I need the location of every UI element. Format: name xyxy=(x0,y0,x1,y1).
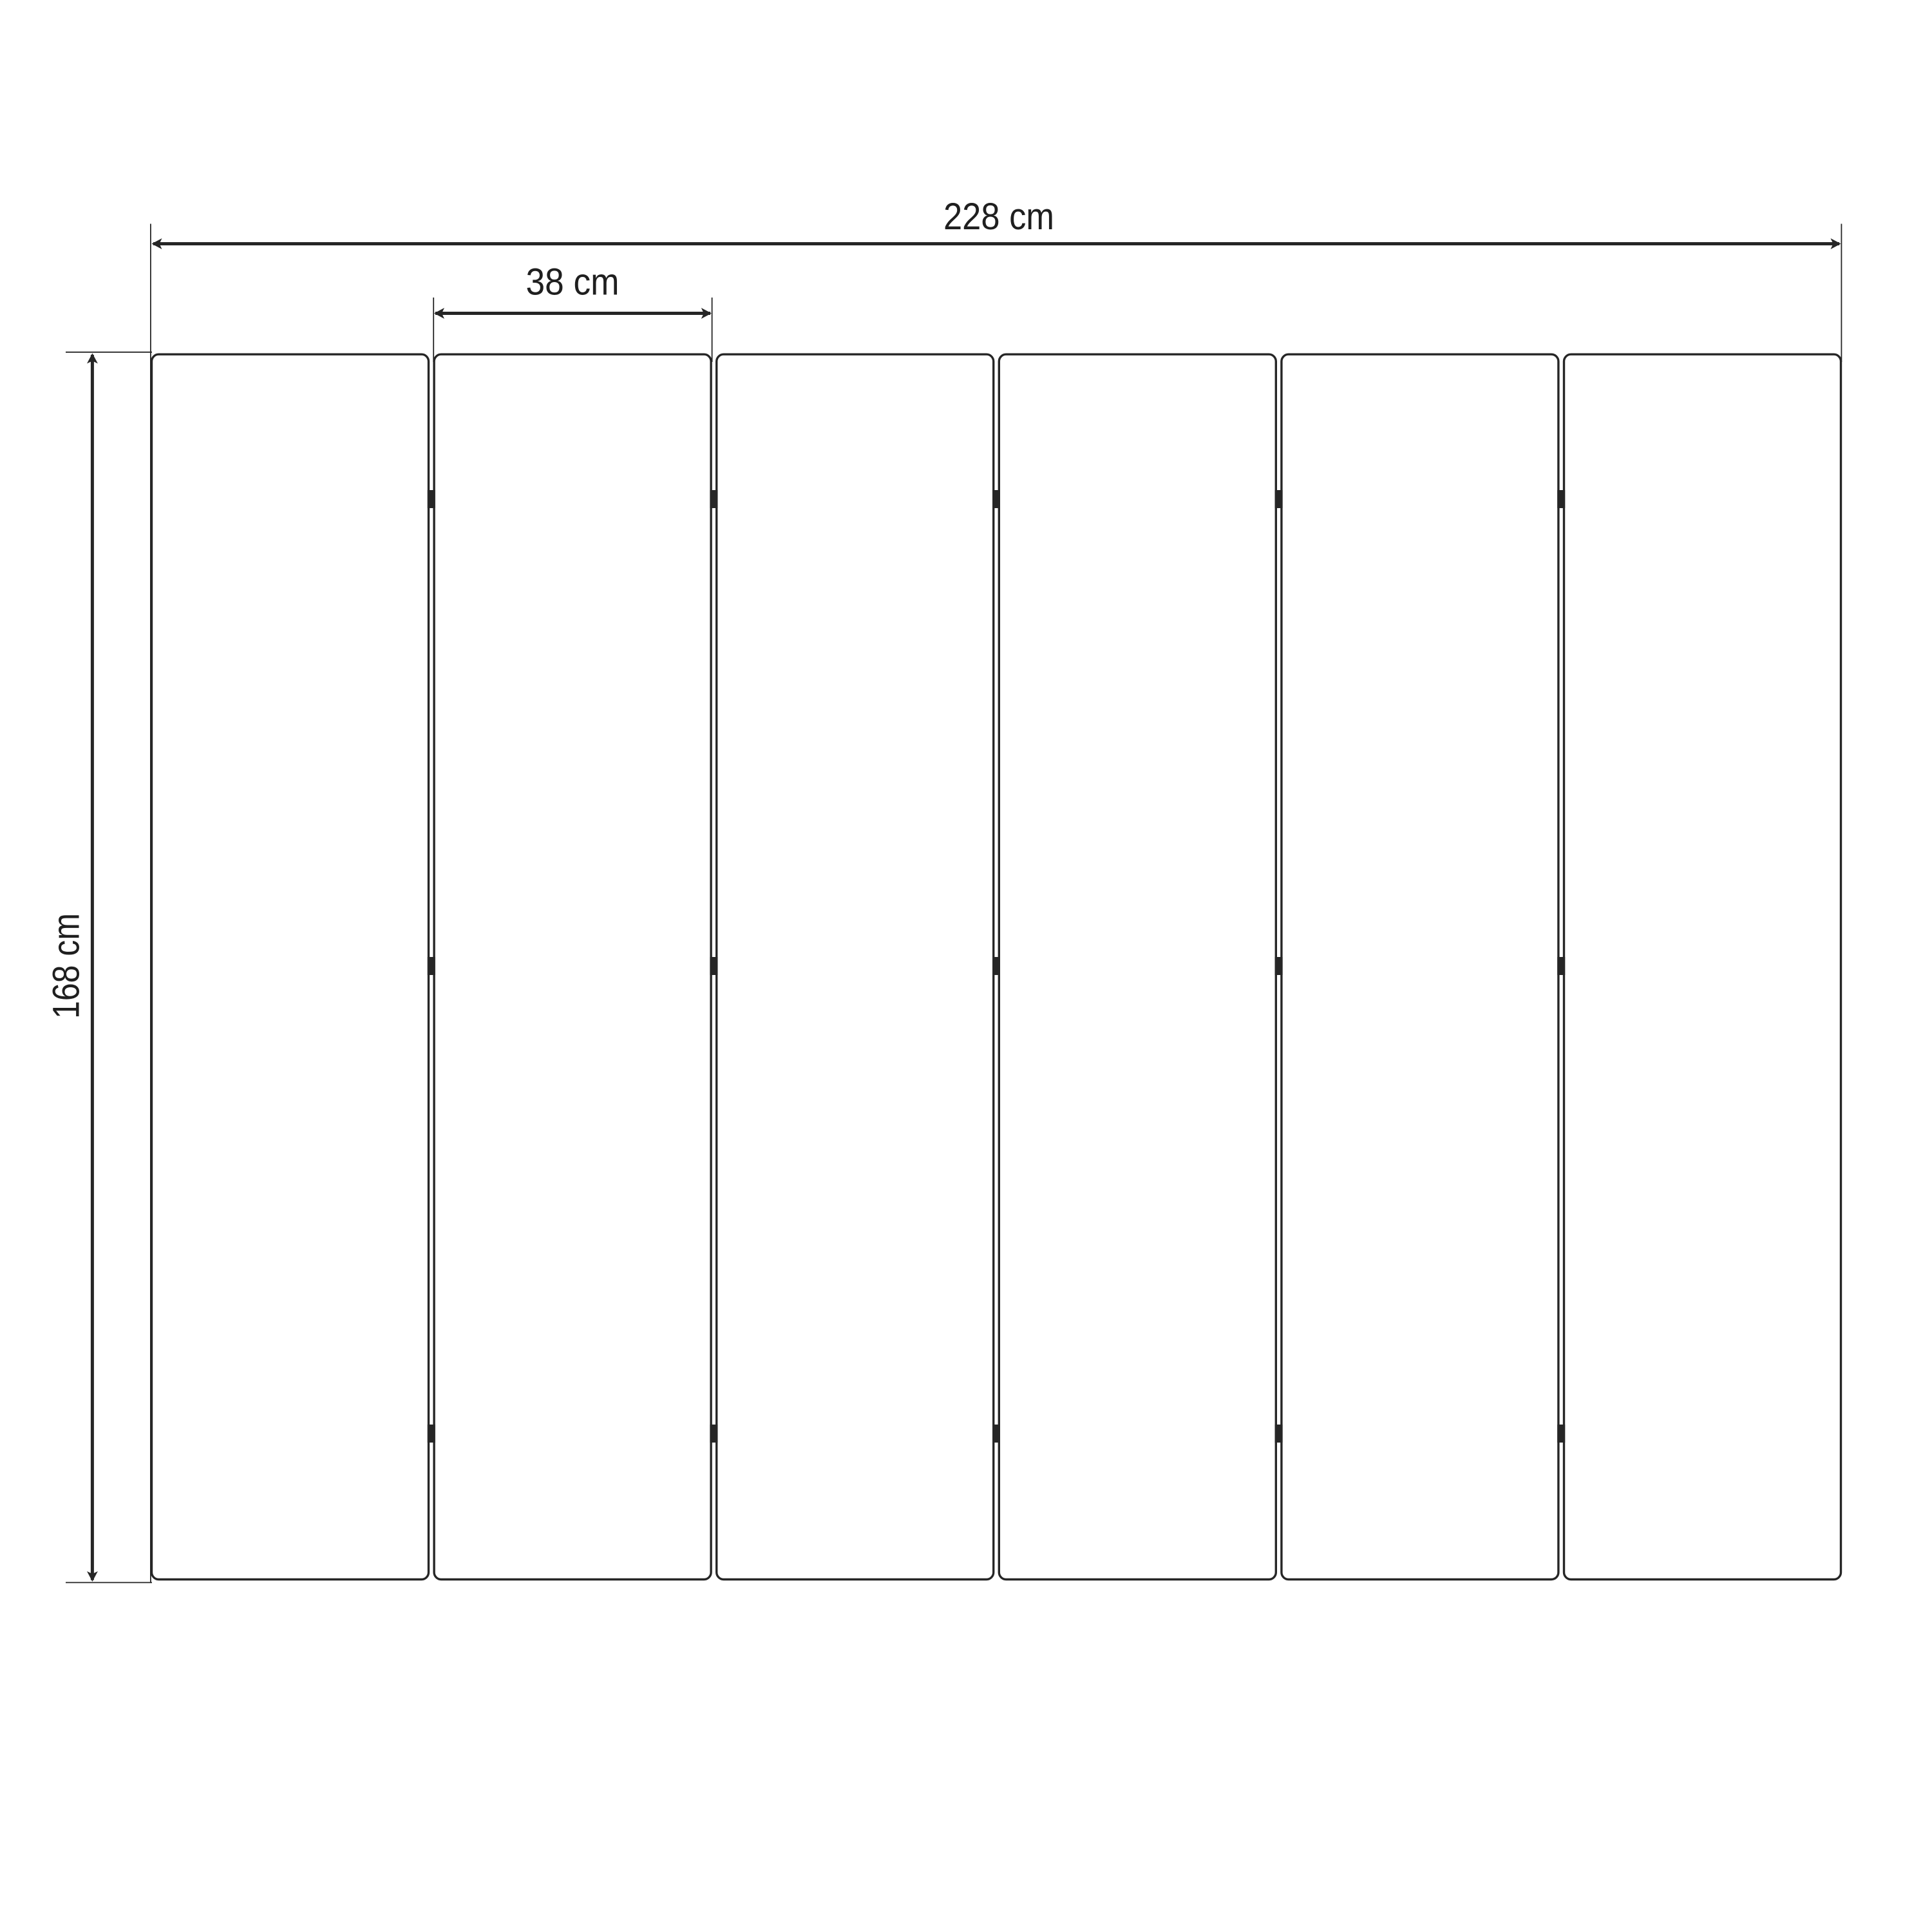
svg-text:228 cm: 228 cm xyxy=(943,196,1054,238)
svg-text:168 cm: 168 cm xyxy=(46,913,88,1019)
svg-text:38 cm: 38 cm xyxy=(526,261,620,303)
